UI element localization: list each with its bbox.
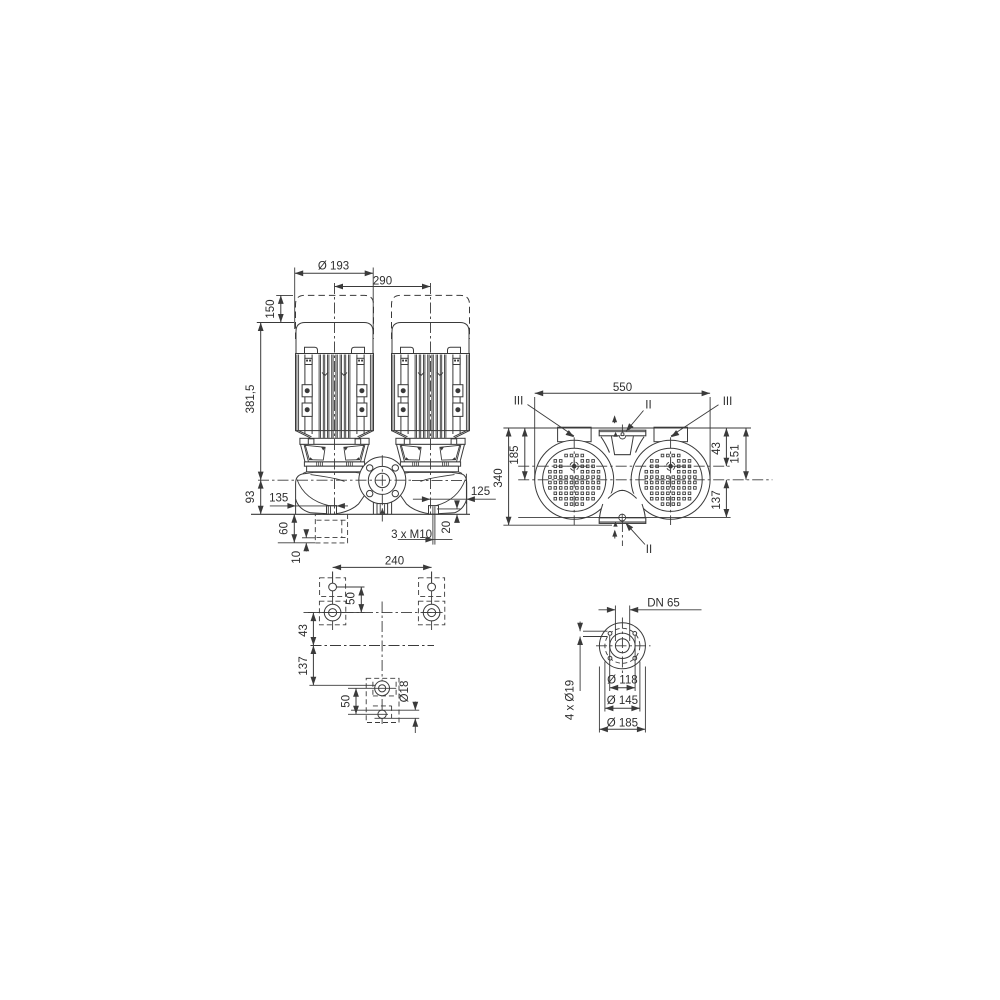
svg-text:43: 43 <box>711 442 723 455</box>
svg-text:10: 10 <box>291 551 303 564</box>
svg-text:III: III <box>514 396 524 408</box>
svg-text:DN 65: DN 65 <box>647 598 680 610</box>
svg-text:340: 340 <box>493 468 505 487</box>
svg-text:125: 125 <box>471 486 490 498</box>
svg-text:185: 185 <box>509 445 521 464</box>
svg-text:Ø 185: Ø 185 <box>607 717 638 729</box>
svg-text:137: 137 <box>711 490 723 509</box>
svg-text:20: 20 <box>441 521 453 534</box>
svg-text:135: 135 <box>269 493 288 505</box>
svg-text:60: 60 <box>279 522 291 535</box>
svg-text:50: 50 <box>340 695 352 708</box>
svg-text:240: 240 <box>385 556 404 568</box>
svg-text:Ø18: Ø18 <box>399 681 411 703</box>
svg-text:381,5: 381,5 <box>245 385 257 414</box>
svg-text:137: 137 <box>298 656 310 675</box>
svg-text:43: 43 <box>298 624 310 637</box>
svg-text:151: 151 <box>730 444 742 463</box>
svg-text:II: II <box>646 544 652 556</box>
svg-text:93: 93 <box>245 491 257 504</box>
svg-text:Ø 193: Ø 193 <box>318 261 349 273</box>
svg-text:550: 550 <box>613 382 632 394</box>
svg-text:II: II <box>645 400 651 412</box>
svg-text:Ø 145: Ø 145 <box>607 695 638 707</box>
svg-text:50: 50 <box>346 592 358 605</box>
svg-text:150: 150 <box>265 299 277 318</box>
svg-text:4 x Ø19: 4 x Ø19 <box>565 680 577 720</box>
svg-text:Ø 118: Ø 118 <box>607 674 637 686</box>
svg-text:290: 290 <box>373 275 392 287</box>
svg-text:III: III <box>723 396 733 408</box>
